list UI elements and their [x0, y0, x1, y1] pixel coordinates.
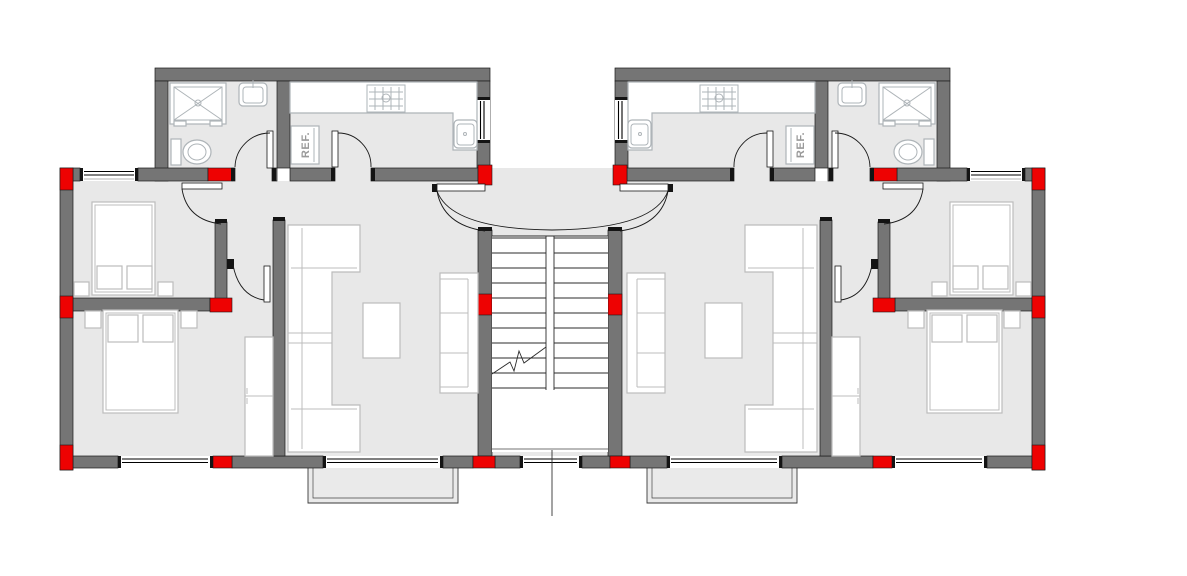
column: [208, 168, 232, 181]
pillow: [932, 315, 962, 342]
nightstand: [908, 311, 924, 328]
column: [613, 165, 627, 185]
wall: [895, 298, 1032, 311]
wall: [155, 81, 168, 181]
kitchen-sink: [454, 120, 477, 148]
wall: [73, 298, 210, 311]
wall: [820, 220, 832, 456]
coffee-table: [363, 303, 400, 358]
sofa: [627, 273, 665, 393]
wall: [615, 68, 950, 81]
nightstand: [1004, 311, 1020, 328]
toilet: [171, 139, 211, 165]
window: [80, 168, 138, 181]
pillow: [983, 266, 1008, 289]
column: [608, 294, 622, 315]
door-leaf: [620, 184, 668, 191]
wall: [1032, 168, 1045, 470]
column: [873, 298, 895, 312]
window: [477, 97, 490, 143]
floor-plan-page: REF. REF.: [0, 0, 1187, 576]
pillow: [127, 266, 152, 289]
refrigerator-label: REF.: [795, 132, 807, 158]
column: [60, 296, 73, 318]
floor-plan-canvas: REF. REF.: [0, 0, 1187, 576]
bathroom-sink: [838, 80, 866, 106]
door-leaf: [437, 184, 485, 191]
column: [60, 445, 73, 470]
nightstand: [932, 282, 947, 296]
coffee-table: [705, 303, 742, 358]
wall: [273, 220, 285, 456]
window: [118, 456, 213, 468]
column: [213, 456, 232, 468]
toilet: [894, 139, 934, 165]
pillow: [967, 315, 997, 342]
column: [60, 168, 73, 190]
window: [520, 456, 582, 468]
wall: [937, 81, 950, 181]
window: [892, 456, 987, 468]
pillow: [108, 315, 138, 342]
nightstand: [85, 311, 101, 328]
window: [667, 456, 782, 468]
column: [873, 456, 892, 468]
wall: [815, 81, 828, 168]
window: [323, 456, 443, 468]
window: [967, 168, 1025, 181]
column: [210, 298, 232, 312]
refrigerator: REF.: [786, 126, 814, 164]
column: [473, 456, 495, 468]
column: [1032, 296, 1045, 318]
bed: [950, 202, 1013, 295]
nightstand: [158, 282, 173, 296]
kitchen-sink: [628, 120, 651, 148]
staircase: [492, 236, 608, 452]
window: [615, 97, 628, 143]
column: [610, 456, 630, 468]
bed: [927, 310, 1002, 413]
column: [1032, 445, 1045, 470]
nightstand: [181, 311, 197, 328]
sofa: [440, 273, 478, 393]
wall: [277, 81, 290, 168]
nightstand: [74, 282, 89, 296]
column: [478, 165, 492, 185]
stair-wall-right: [608, 230, 622, 456]
stair-wall-left: [478, 230, 492, 456]
wall: [60, 168, 73, 470]
pillow: [143, 315, 173, 342]
wall: [878, 222, 890, 311]
pillow: [97, 266, 122, 289]
pillow: [953, 266, 978, 289]
wardrobe: [832, 337, 860, 456]
refrigerator-label: REF.: [300, 132, 312, 158]
nightstand: [1016, 282, 1031, 296]
refrigerator: REF.: [291, 126, 319, 164]
column: [478, 294, 492, 315]
column: [873, 168, 897, 181]
bed: [103, 310, 178, 413]
shower: [879, 83, 935, 126]
wardrobe: [245, 337, 273, 456]
bathroom-sink: [239, 80, 267, 106]
column: [1032, 168, 1045, 190]
wall: [155, 68, 490, 81]
bed: [92, 202, 155, 295]
shower: [170, 83, 226, 126]
wall: [215, 222, 227, 311]
